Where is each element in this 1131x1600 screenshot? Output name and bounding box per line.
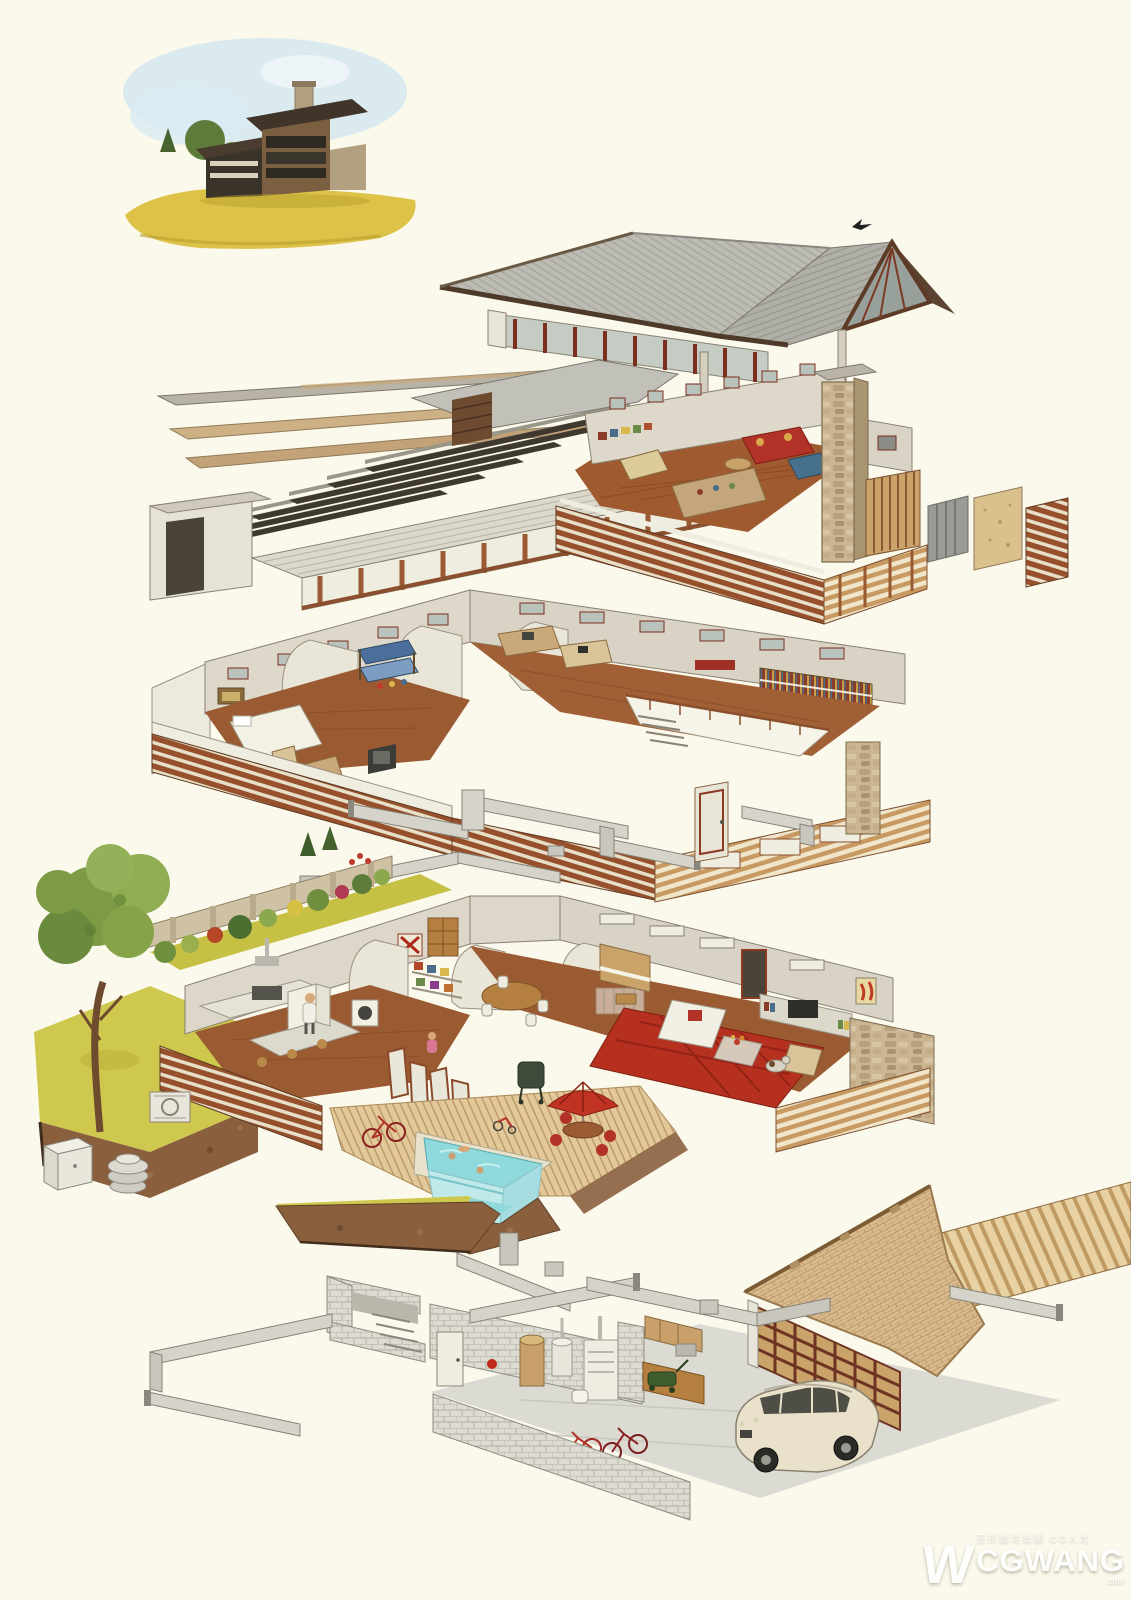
window-well-stair [327, 1276, 425, 1362]
layer-roof [440, 219, 955, 396]
ac-unit [150, 1092, 190, 1122]
range-hood [255, 956, 279, 966]
layer-basement-garage [144, 1182, 1131, 1520]
round-table [725, 458, 751, 470]
swimmer-2 [477, 1167, 484, 1174]
watermark: W 王氏教育集团 CG人才 CGWANG .com [922, 1531, 1125, 1586]
exploded-house-illustration [0, 0, 1131, 1600]
water-softener [520, 1335, 544, 1386]
patio-table [563, 1122, 603, 1138]
stool [257, 1057, 267, 1067]
swimmer-3 [458, 1146, 470, 1152]
detached-door [695, 782, 728, 862]
child-figure [427, 1032, 437, 1053]
back-door [742, 950, 766, 998]
watermark-brand: CGWANG [976, 1545, 1125, 1576]
corridor-door-opening [166, 517, 204, 596]
red-cushion [688, 1010, 702, 1021]
water-heater [552, 1318, 572, 1376]
swimmer [449, 1153, 456, 1160]
figure-painting [856, 978, 876, 1004]
stone-chimney [822, 382, 854, 562]
washing-machine [352, 1000, 378, 1026]
utility-right-wall [618, 1322, 644, 1402]
conifer [300, 832, 316, 856]
chimney-cap [814, 364, 876, 380]
conifer-2 [322, 826, 338, 850]
cgwang-logo: W [920, 1544, 975, 1586]
shop-sink [676, 1344, 696, 1356]
siding-panel-sample [1026, 498, 1068, 587]
watermark-domain: .com [1105, 1576, 1125, 1586]
chimney-pier [846, 742, 880, 834]
septic-lid [108, 1154, 148, 1193]
exterior-vignette [123, 38, 416, 249]
layer-upper-floor [150, 360, 1068, 624]
meter-box [44, 1138, 92, 1190]
dining-back-wall [470, 896, 560, 944]
illustration-page: W 王氏教育集团 CG人才 CGWANG .com [0, 0, 1131, 1600]
range-stove [252, 986, 282, 1000]
wall-sample-panels [928, 487, 1068, 587]
television [788, 1000, 818, 1018]
utility-tub [572, 1390, 588, 1403]
furnace [584, 1316, 618, 1400]
plank-wall [452, 392, 492, 446]
car-grille [740, 1430, 752, 1438]
bird-on-ridge [852, 219, 872, 230]
left-exit-ducts [144, 1314, 332, 1436]
metal-panel-sample [928, 496, 968, 562]
red-book-row [695, 660, 735, 670]
layer-ground-floor [34, 826, 934, 1254]
plywood-panel-sample [974, 487, 1022, 570]
fire-extinguisher [487, 1359, 497, 1369]
layer-bedroom-floor [152, 590, 930, 902]
